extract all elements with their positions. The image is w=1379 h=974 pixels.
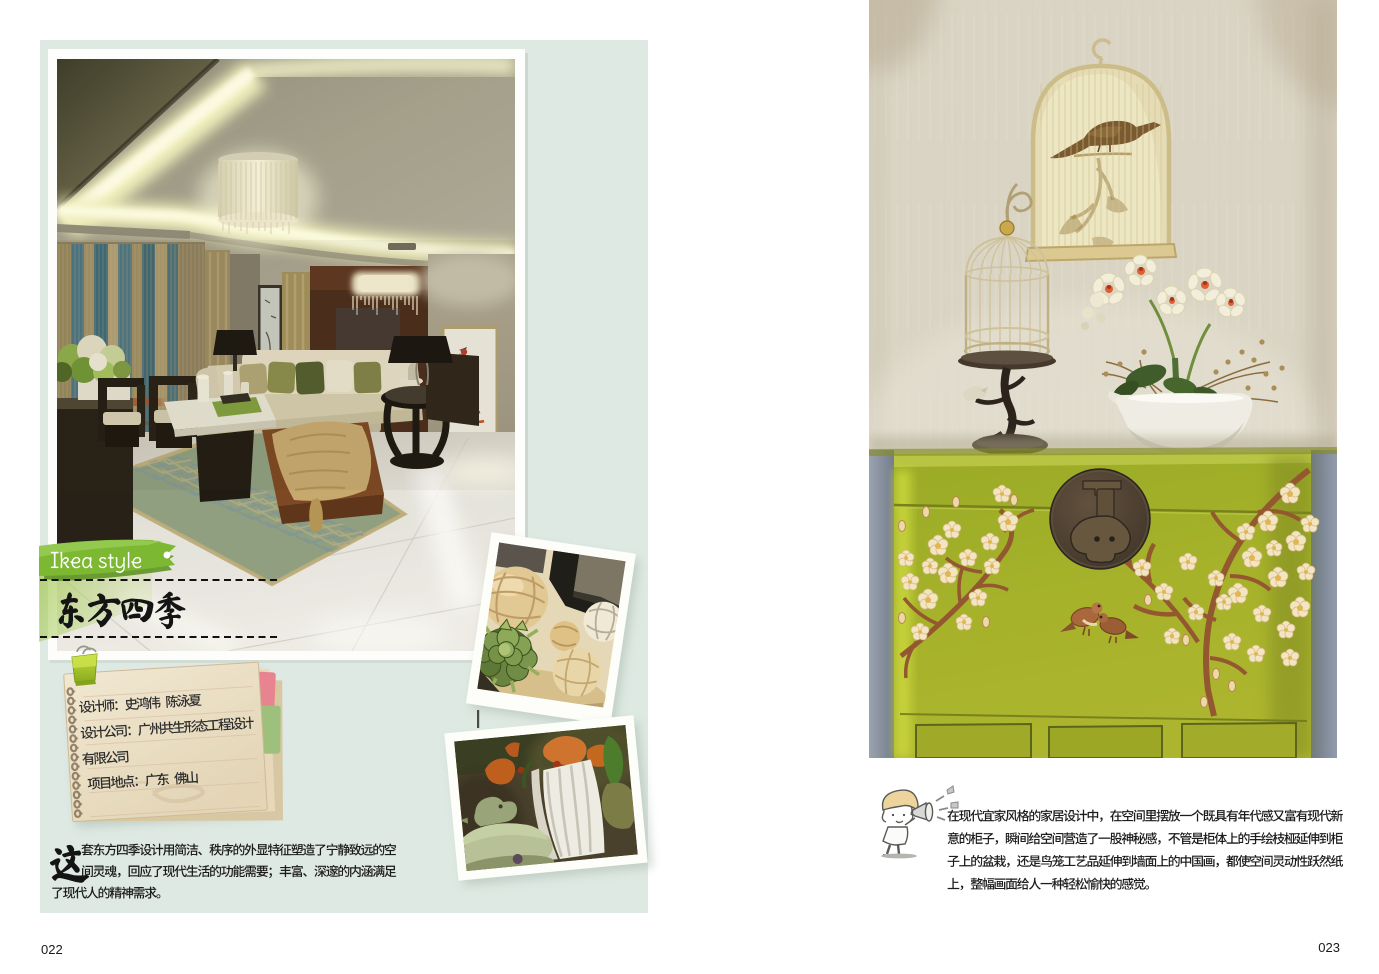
- svg-text:022: 022: [41, 942, 63, 957]
- svg-text:023: 023: [1318, 940, 1340, 955]
